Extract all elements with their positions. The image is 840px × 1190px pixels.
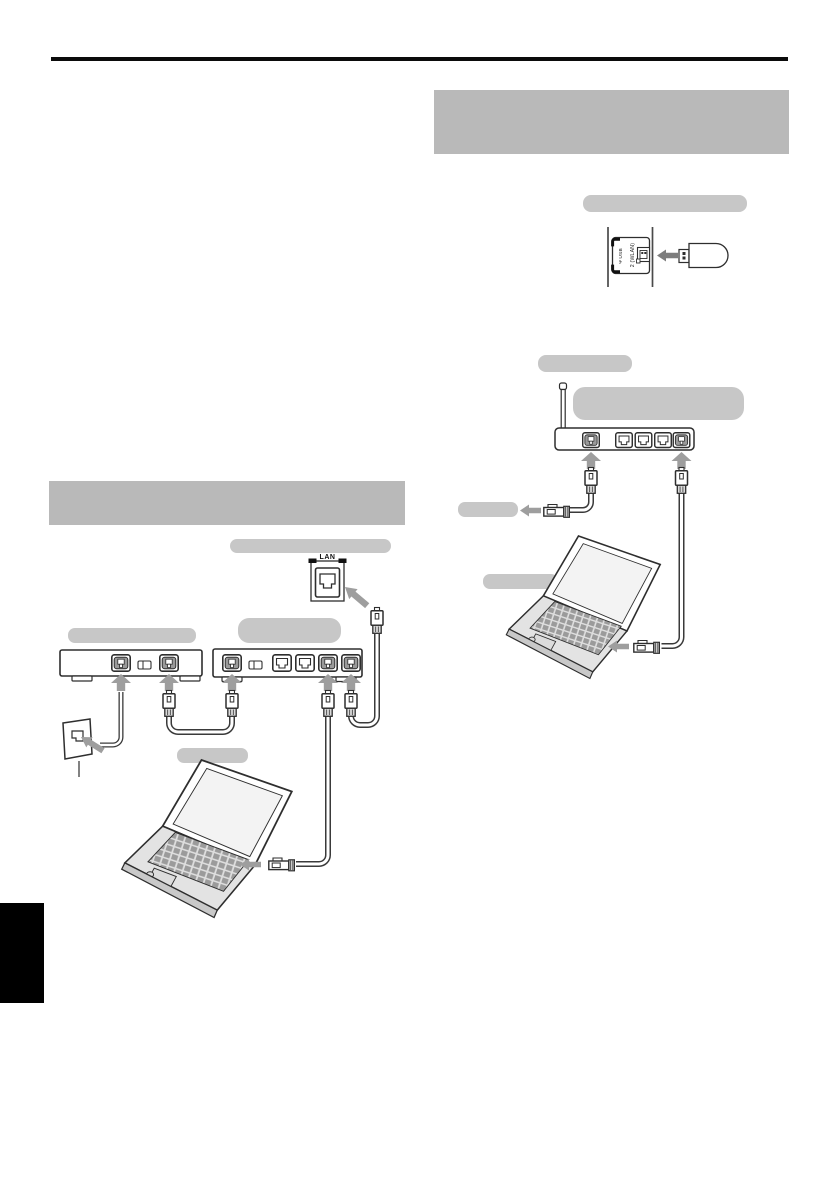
cable-router-to-laptop	[662, 493, 682, 646]
ethernet-plug	[371, 608, 383, 634]
hub-lan-port-2	[296, 655, 314, 671]
tv-usb-port-number-label: 2 (WLAN)	[630, 243, 636, 267]
wall-outlet	[63, 719, 105, 777]
cable-modem-to-outlet	[100, 692, 121, 745]
manual-page: LAN ΨUSB 2 (WLAN)	[0, 0, 840, 1190]
hub-router	[213, 649, 362, 716]
arrow-into-lan-jack	[345, 587, 369, 608]
arrow-up-router-lan4	[672, 452, 692, 469]
usb-label-text: USB	[619, 248, 624, 258]
router-lan-port-2	[635, 433, 652, 448]
arrow-to-modem	[520, 505, 541, 517]
antenna	[561, 390, 565, 429]
cable-router-to-modem	[570, 493, 591, 510]
router-wan-port	[583, 433, 600, 448]
router-lan-port-1	[616, 433, 633, 448]
to-modem-connector	[520, 505, 569, 518]
ethernet-plug	[585, 468, 597, 494]
right-diagram	[506, 227, 728, 679]
diagram-artwork	[0, 0, 840, 1190]
ethernet-plug	[544, 505, 570, 518]
lan-wall-jack	[309, 559, 384, 634]
arrow-up-router-wan	[581, 452, 601, 469]
modem-line-port	[112, 655, 130, 671]
hub-wan-port	[223, 655, 241, 671]
ethernet-plug	[634, 641, 660, 654]
router-lan-port-4	[673, 433, 690, 448]
lan-jack-label: LAN	[311, 554, 344, 562]
modem-lan-port	[160, 655, 178, 671]
cable-modem-to-hub	[169, 716, 232, 732]
left-diagram	[60, 559, 383, 918]
ethernet-plug	[676, 468, 688, 494]
hub-lan-port-1	[273, 655, 291, 671]
tv-side-panel	[608, 227, 728, 287]
router-lan-port-3	[655, 433, 672, 448]
laptop-left	[122, 760, 295, 918]
laptop-right	[506, 536, 660, 679]
wireless-lan-adapter	[679, 244, 728, 268]
ethernet-plug	[345, 691, 357, 717]
ethernet-plug	[226, 691, 238, 717]
usb-port-icon	[637, 248, 650, 264]
cable-hub-to-laptop	[296, 716, 328, 864]
usb-trident-icon: Ψ	[619, 260, 624, 264]
modem	[60, 650, 202, 716]
ethernet-plug	[322, 691, 334, 717]
arrow-into-usb-port	[657, 250, 678, 262]
tv-usb-label: ΨUSB	[619, 248, 625, 264]
antenna-tip	[560, 383, 567, 390]
hub-lan-port-4	[342, 655, 360, 671]
ethernet-plug	[269, 858, 295, 871]
hub-lan-port-3	[319, 655, 337, 671]
ethernet-plug	[163, 691, 175, 717]
wireless-router	[555, 383, 694, 493]
